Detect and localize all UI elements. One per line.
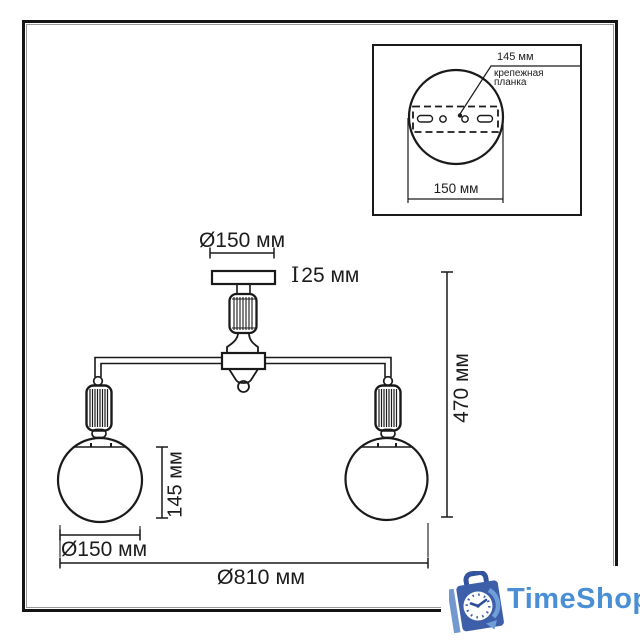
- right-lamp-holder: [376, 377, 401, 438]
- globe-height-label: 145 мм: [166, 449, 187, 521]
- total-width-label: Ø810 мм: [214, 566, 308, 588]
- canopy-diameter-label: Ø150 мм: [196, 230, 288, 252]
- screw-hole-left: [440, 116, 446, 122]
- timeshop-logo: TimeShop: [441, 566, 640, 640]
- canopy-base-circle: [409, 70, 503, 164]
- bracket-name-label: крепежная планка: [494, 69, 544, 87]
- left-lamp-holder: [87, 377, 112, 438]
- base-diameter-label: 150 мм: [426, 181, 486, 197]
- center-column: [227, 294, 258, 353]
- shopping-bag-clock-icon: [449, 571, 509, 637]
- clock-face: [464, 592, 493, 621]
- mounting-bracket-dashed: [413, 107, 498, 133]
- ceiling-canopy: [212, 271, 275, 294]
- right-globe-shade: [346, 438, 428, 520]
- canopy-height-label: I25 мм: [291, 264, 359, 287]
- cross-arm: [95, 358, 391, 378]
- globe-diameter-label: Ø150 мм: [58, 539, 150, 561]
- timeshop-logo-text: TimeShop: [507, 583, 640, 616]
- center-hub: [222, 353, 265, 392]
- screw-hole-right: [462, 116, 468, 122]
- left-slot-hole: [418, 116, 433, 123]
- left-globe-shade: [58, 438, 142, 522]
- right-slot-hole: [478, 116, 493, 123]
- total-height-label: 470 мм: [451, 348, 473, 428]
- height-mark-glyph: I: [291, 263, 299, 287]
- bracket-width-label: 145 мм: [497, 51, 534, 64]
